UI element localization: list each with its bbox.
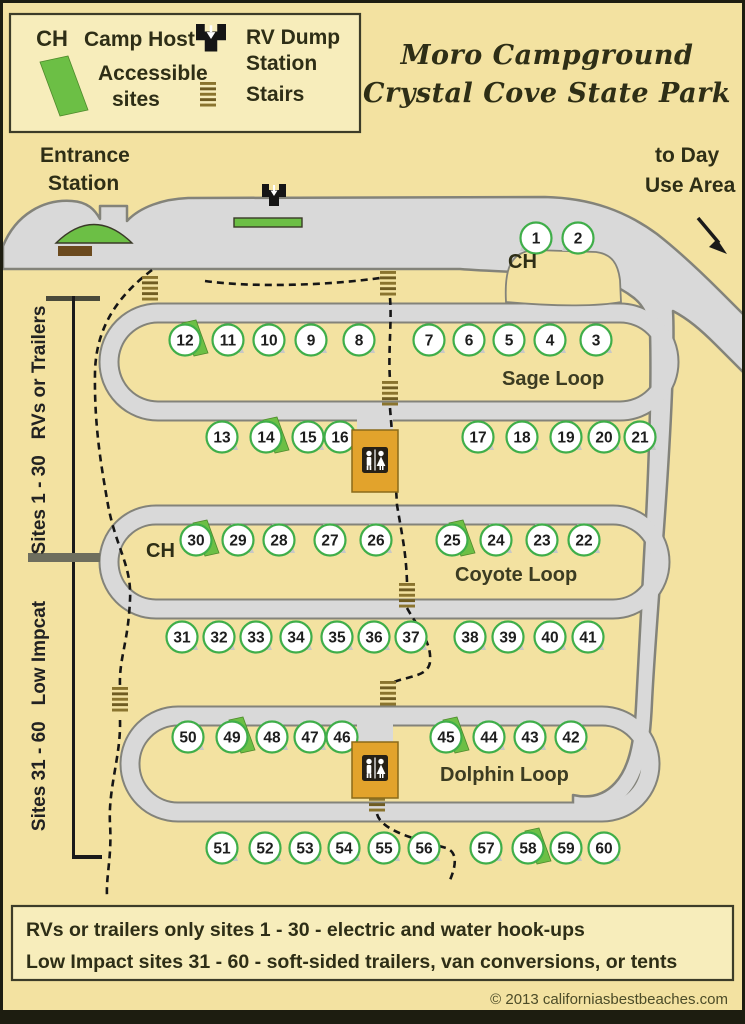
site-marker-26: 26 <box>361 524 393 556</box>
site-marker-3: 3 <box>581 324 613 356</box>
map-title-line-2: Crystal Cove State Park <box>363 78 731 109</box>
site-number: 60 <box>595 841 612 858</box>
site-marker-11: 11 <box>213 324 245 356</box>
site-number: 49 <box>223 730 241 747</box>
site-marker-27: 27 <box>315 524 347 556</box>
site-marker-54: 54 <box>329 832 361 864</box>
site-marker-60: 60 <box>589 832 621 864</box>
site-marker-56: 56 <box>409 832 441 864</box>
site-number: 8 <box>355 333 364 350</box>
site-number: 57 <box>477 841 494 858</box>
entrance-station-label-1: Entrance <box>40 144 130 167</box>
site-marker-47: 47 <box>295 721 327 753</box>
site-marker-39: 39 <box>493 621 525 653</box>
site-number: 32 <box>210 630 227 647</box>
site-number: 41 <box>579 630 597 647</box>
site-number: 29 <box>229 533 247 550</box>
info-line-1: RVs or trailers only sites 1 - 30 - elec… <box>26 919 585 941</box>
site-number: 6 <box>465 333 474 350</box>
site-marker-17: 17 <box>463 421 495 453</box>
site-marker-50: 50 <box>173 721 205 753</box>
site-number: 42 <box>562 730 579 747</box>
sites-31-60-label: Sites 31 - 60 Low Impcat <box>29 600 50 831</box>
site-marker-53: 53 <box>290 832 322 864</box>
site-marker-19: 19 <box>551 421 583 453</box>
legend-box: CH Camp Host Accessible sites RV Dump St… <box>10 14 360 132</box>
site-number: 18 <box>513 430 531 447</box>
site-number: 33 <box>247 630 265 647</box>
site-number: 16 <box>331 430 349 447</box>
site-marker-2: 2 <box>562 223 594 254</box>
site-number: 24 <box>487 533 505 550</box>
site-marker-41: 41 <box>573 621 605 653</box>
site-number: 58 <box>519 841 537 858</box>
site-number: 52 <box>256 841 273 858</box>
site-marker-8: 8 <box>344 324 376 356</box>
site-number: 59 <box>557 841 575 858</box>
site-number: 15 <box>299 430 317 447</box>
site-marker-13: 13 <box>207 421 239 453</box>
site-number: 21 <box>631 430 649 447</box>
site-marker-48: 48 <box>257 721 289 753</box>
site-number: 34 <box>287 630 305 647</box>
restroom-driveway-2 <box>357 708 393 746</box>
site-number: 38 <box>461 630 479 647</box>
site-marker-38: 38 <box>455 621 487 653</box>
site-marker-5: 5 <box>494 324 526 356</box>
campground-map: 1234567891011121314151617181920212223242… <box>0 0 745 1024</box>
site-number: 37 <box>402 630 419 647</box>
site-marker-29: 29 <box>223 524 255 556</box>
site-marker-1: 1 <box>520 223 552 254</box>
site-number: 44 <box>480 730 498 747</box>
site-marker-33: 33 <box>241 621 273 653</box>
site-number: 27 <box>321 533 338 550</box>
coyote-loop-label: Coyote Loop <box>455 564 577 586</box>
site-number: 11 <box>220 333 237 350</box>
day-use-label-2: Use Area <box>645 174 736 197</box>
site-number: 47 <box>301 730 318 747</box>
site-marker-24: 24 <box>481 524 513 556</box>
site-number: 45 <box>437 730 455 747</box>
site-marker-51: 51 <box>207 832 239 864</box>
site-marker-23: 23 <box>527 524 559 556</box>
site-number: 12 <box>176 333 193 350</box>
restroom-building-2 <box>352 742 398 798</box>
site-number: 54 <box>335 841 353 858</box>
site-marker-37: 37 <box>396 621 428 653</box>
site-marker-6: 6 <box>454 324 486 356</box>
ch-label-site-30: CH <box>146 540 175 562</box>
site-marker-9: 9 <box>296 324 328 356</box>
sites-1-30-label: Sites 1 - 30 RVs or Trailers <box>29 306 50 555</box>
site-marker-7: 7 <box>414 324 446 356</box>
site-number: 3 <box>592 333 601 350</box>
site-number: 46 <box>333 730 351 747</box>
site-number: 48 <box>263 730 281 747</box>
site-number: 28 <box>270 533 288 550</box>
dolphin-loop-label: Dolphin Loop <box>440 764 569 786</box>
site-marker-32: 32 <box>204 621 236 653</box>
site-number: 26 <box>367 533 385 550</box>
site-marker-43: 43 <box>515 721 547 753</box>
legend-rv-dump-label-2: Station <box>246 52 317 75</box>
info-line-2: Low Impact sites 31 - 60 - soft-sided tr… <box>26 951 677 973</box>
site-marker-44: 44 <box>474 721 506 753</box>
restroom-icon <box>362 447 388 473</box>
site-number: 4 <box>546 333 555 350</box>
site-number: 50 <box>179 730 196 747</box>
day-use-label-1: to Day <box>655 144 720 167</box>
site-number: 40 <box>541 630 558 647</box>
site-marker-40: 40 <box>535 621 567 653</box>
legend-camp-host-label: Camp Host <box>84 28 195 51</box>
site-number: 2 <box>574 231 583 248</box>
site-number: 10 <box>260 333 277 350</box>
site-number: 14 <box>257 430 275 447</box>
legend-stairs-label: Stairs <box>246 83 304 106</box>
road-median-strip <box>234 218 302 227</box>
site-marker-57: 57 <box>471 832 503 864</box>
site-number: 43 <box>521 730 539 747</box>
sage-loop-label: Sage Loop <box>502 368 604 390</box>
site-marker-31: 31 <box>167 621 199 653</box>
site-marker-22: 22 <box>569 524 601 556</box>
site-number: 23 <box>533 533 551 550</box>
site-number: 20 <box>595 430 612 447</box>
restroom-building-1 <box>352 430 398 492</box>
map-title-line-1: Moro Campground <box>400 40 694 71</box>
site-number: 25 <box>443 533 461 550</box>
site-number: 9 <box>307 333 316 350</box>
site-number: 1 <box>532 231 541 248</box>
site-marker-42: 42 <box>556 721 588 753</box>
info-box: RVs or trailers only sites 1 - 30 - elec… <box>12 906 733 980</box>
site-marker-34: 34 <box>281 621 313 653</box>
site-marker-52: 52 <box>250 832 282 864</box>
legend-sites-label: sites <box>112 88 160 111</box>
site-number: 17 <box>469 430 486 447</box>
restroom-icon <box>362 755 388 781</box>
site-number: 35 <box>328 630 346 647</box>
legend-rv-dump-label-1: RV Dump <box>246 26 340 49</box>
site-marker-18: 18 <box>507 421 539 453</box>
site-number: 31 <box>173 630 191 647</box>
site-number: 55 <box>375 841 393 858</box>
site-marker-55: 55 <box>369 832 401 864</box>
site-number: 39 <box>499 630 517 647</box>
site-marker-20: 20 <box>589 421 621 453</box>
entrance-station-label-2: Station <box>48 172 119 195</box>
site-number: 36 <box>365 630 383 647</box>
legend-accessible-label: Accessible <box>98 62 208 85</box>
site-number: 19 <box>557 430 575 447</box>
site-marker-15: 15 <box>293 421 325 453</box>
site-number: 30 <box>187 533 204 550</box>
site-marker-4: 4 <box>535 324 567 356</box>
copyright-text: © 2013 californiasbestbeaches.com <box>490 991 728 1008</box>
site-number: 5 <box>505 333 514 350</box>
site-marker-36: 36 <box>359 621 391 653</box>
site-number: 7 <box>425 333 434 350</box>
site-marker-21: 21 <box>625 421 657 453</box>
entrance-booth <box>58 246 92 256</box>
legend-ch-label: CH <box>36 26 68 51</box>
site-marker-35: 35 <box>322 621 354 653</box>
campground-map-page: 1234567891011121314151617181920212223242… <box>0 0 745 1024</box>
site-number: 22 <box>575 533 592 550</box>
site-number: 13 <box>213 430 231 447</box>
site-marker-10: 10 <box>254 324 286 356</box>
site-number: 51 <box>213 841 231 858</box>
ch-label-site-1: CH <box>508 251 537 273</box>
site-marker-59: 59 <box>551 832 583 864</box>
site-number: 56 <box>415 841 433 858</box>
site-number: 53 <box>296 841 314 858</box>
site-marker-28: 28 <box>264 524 296 556</box>
